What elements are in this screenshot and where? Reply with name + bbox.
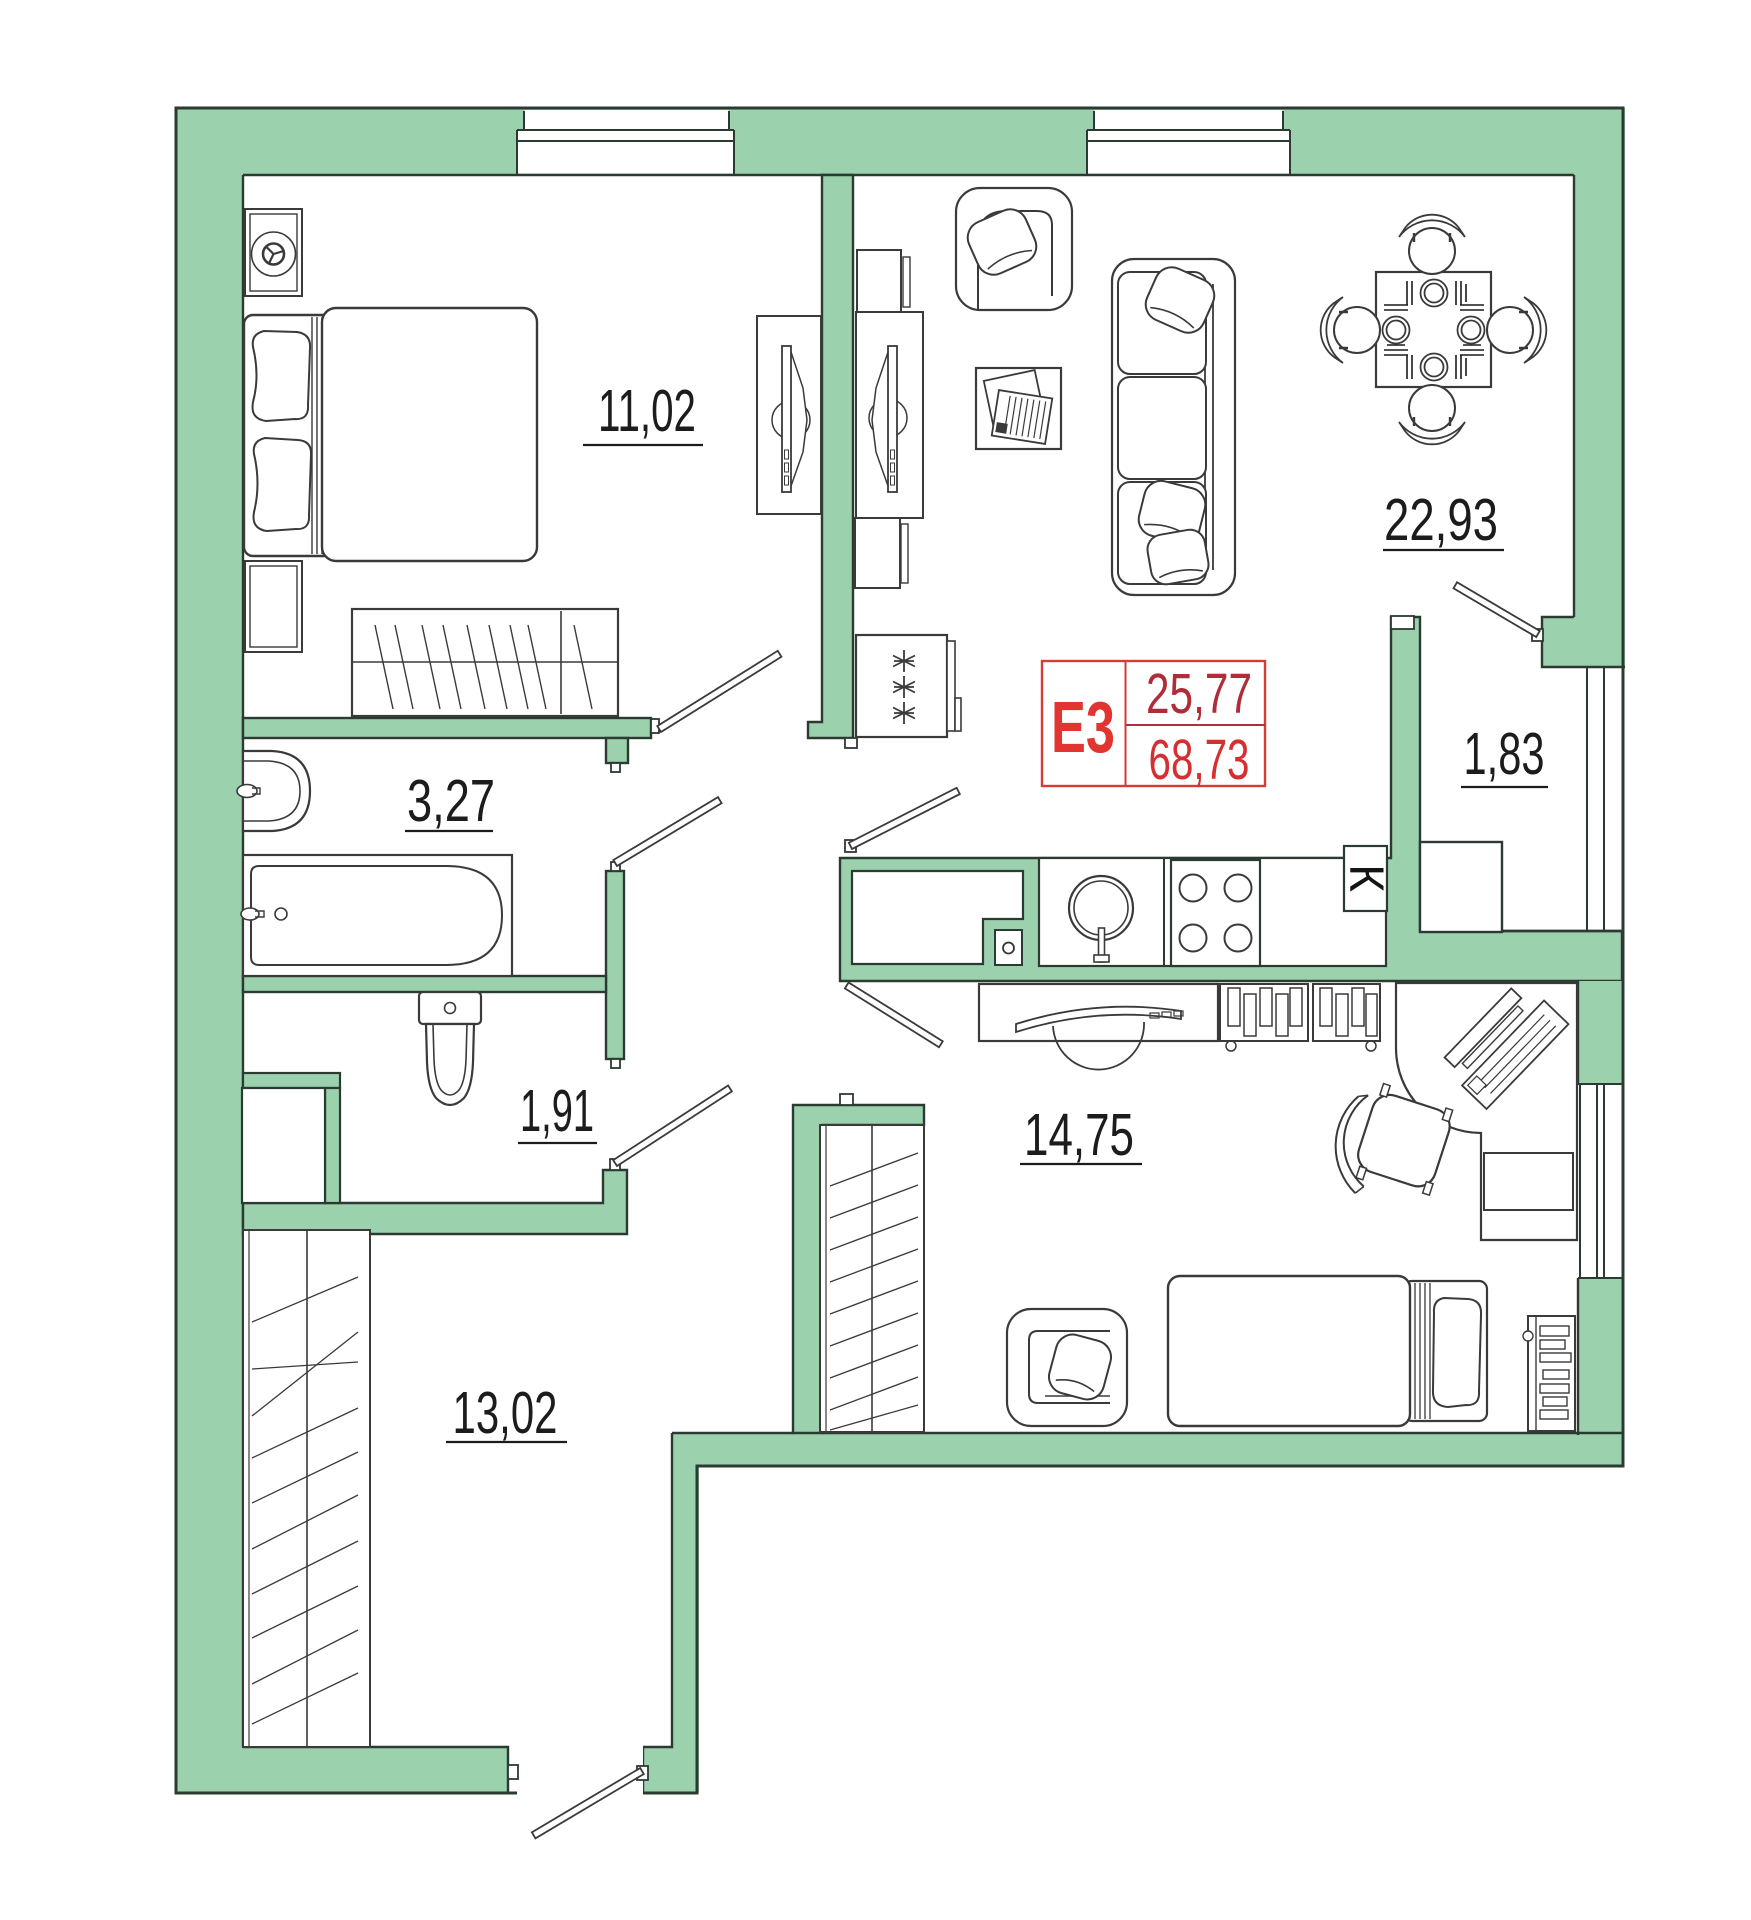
svg-text:13,02: 13,02 <box>453 1380 558 1446</box>
svg-text:22,93: 22,93 <box>1384 487 1498 553</box>
svg-text:3,27: 3,27 <box>407 768 495 834</box>
svg-text:11,02: 11,02 <box>598 378 696 444</box>
svg-text:1,91: 1,91 <box>520 1078 594 1144</box>
svg-text:14,75: 14,75 <box>1024 1102 1134 1168</box>
svg-text:68,73: 68,73 <box>1149 728 1250 792</box>
svg-text:1,83: 1,83 <box>1464 721 1545 787</box>
svg-text:25,77: 25,77 <box>1146 662 1252 726</box>
svg-text:Е3: Е3 <box>1051 688 1115 768</box>
svg-text:К: К <box>1340 864 1393 892</box>
